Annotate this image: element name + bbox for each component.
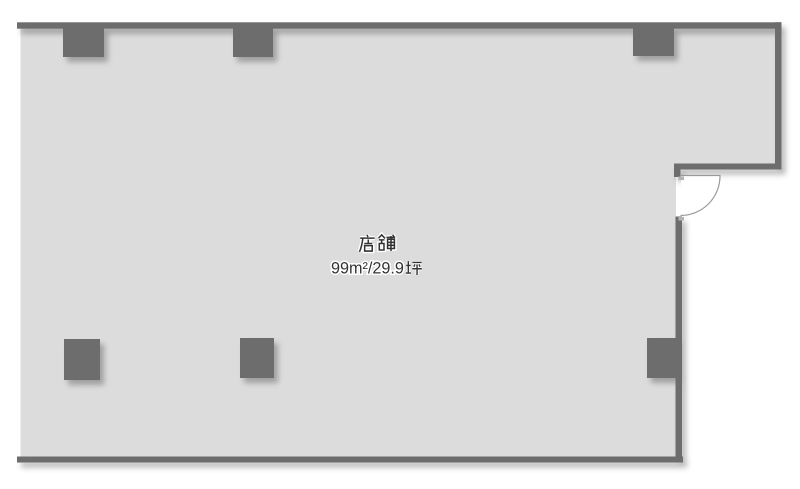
- svg-text:99m²/29.9: 99m²/29.9: [331, 260, 404, 278]
